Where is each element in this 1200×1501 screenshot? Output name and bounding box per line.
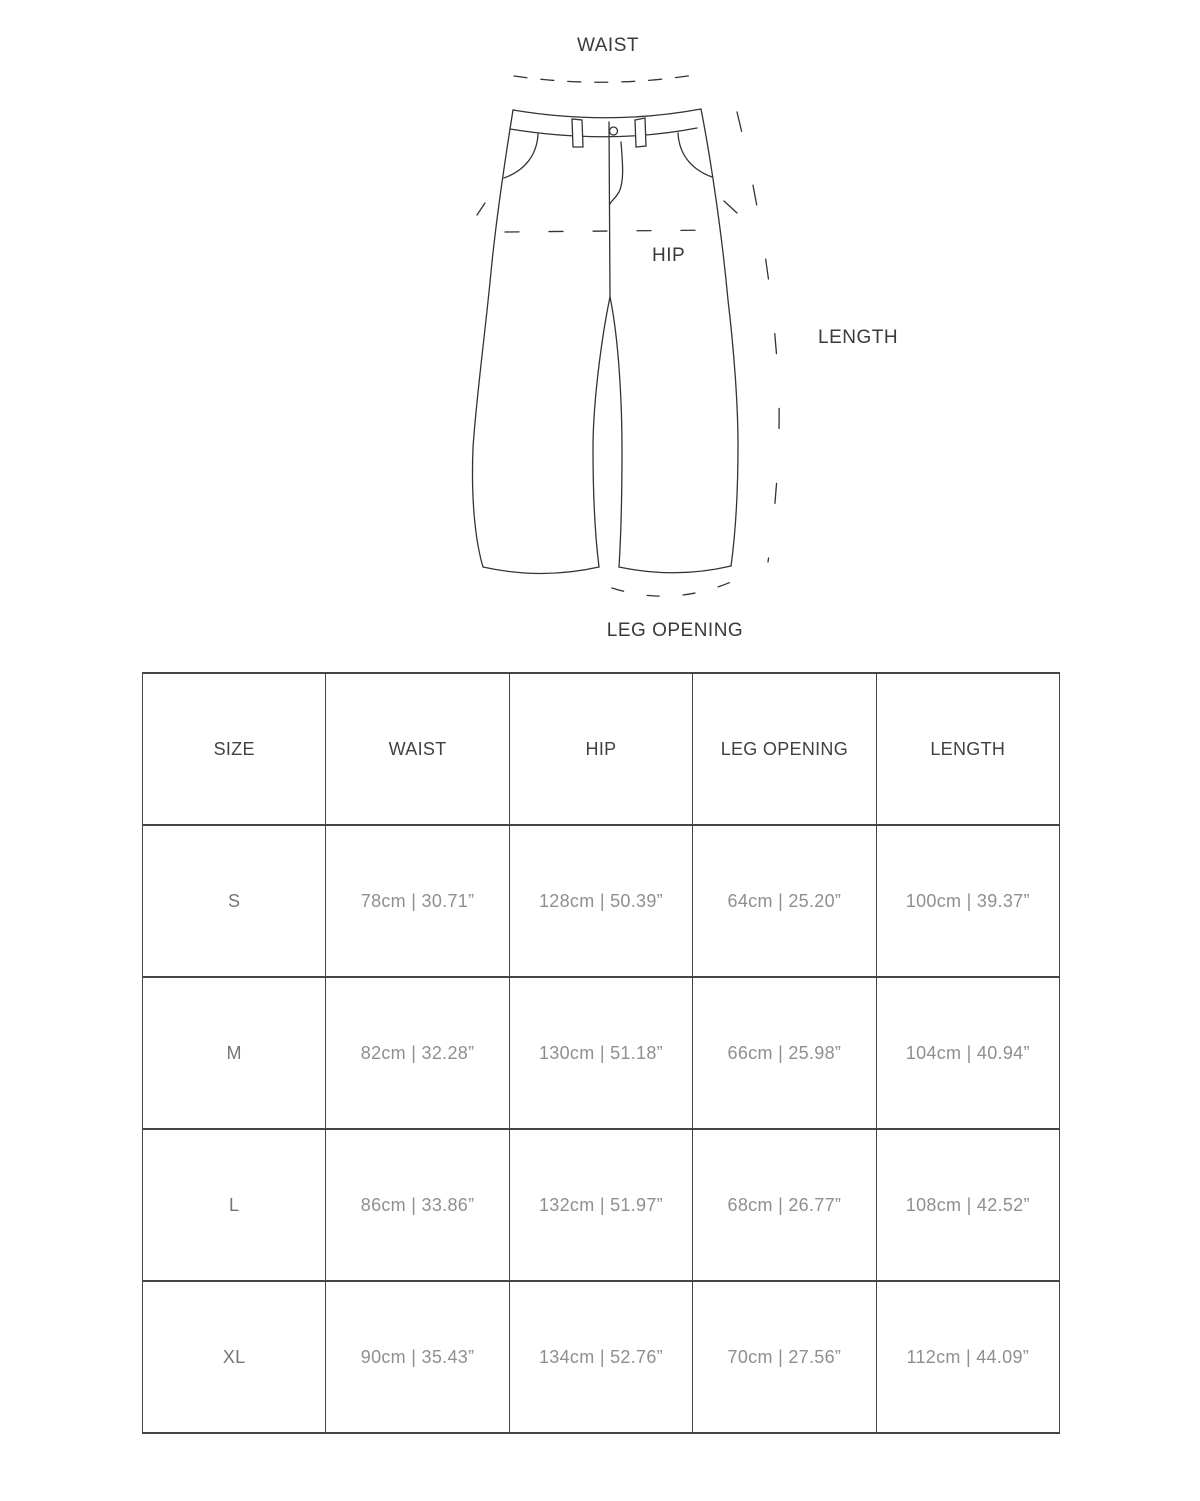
cell-l-waist: 86cm | 33.86” — [326, 1129, 509, 1281]
header-row: SIZE WAIST HIP LEG OPENING LENGTH — [143, 673, 1060, 825]
column-header-leg-opening: LEG OPENING — [693, 673, 876, 825]
cell-s-waist: 78cm | 30.71” — [326, 825, 509, 977]
right-seam-notch — [724, 201, 737, 213]
cell-s-leg-opening: 64cm | 25.20” — [693, 825, 876, 977]
waist-measure-line — [514, 75, 694, 82]
cell-m-waist: 82cm | 32.28” — [326, 977, 509, 1129]
hip-measure-line — [505, 230, 718, 232]
cell-m-hip: 130cm | 51.18” — [509, 977, 692, 1129]
cell-m-length: 104cm | 40.94” — [876, 977, 1059, 1129]
pants-technical-drawing — [0, 0, 1200, 660]
size-guide-page: WAIST HIP LENGTH LEG OPENING SIZE WAIST … — [0, 0, 1200, 1501]
right-leg-inseam — [610, 297, 622, 567]
table-row-s: S 78cm | 30.71” 128cm | 50.39” 64cm | 25… — [143, 825, 1060, 977]
cell-l-length: 108cm | 42.52” — [876, 1129, 1059, 1281]
leg-opening-label: LEG OPENING — [607, 620, 743, 642]
cell-l-hip: 132cm | 51.97” — [509, 1129, 692, 1281]
right-belt-loop — [635, 118, 646, 147]
cell-s-size: S — [143, 825, 326, 977]
cell-s-hip: 128cm | 50.39” — [509, 825, 692, 977]
hip-label: HIP — [652, 245, 685, 267]
column-header-length: LENGTH — [876, 673, 1059, 825]
cell-l-size: L — [143, 1129, 326, 1281]
waist-button — [610, 127, 618, 135]
table-row-xl: XL 90cm | 35.43” 134cm | 52.76” 70cm | 2… — [143, 1281, 1060, 1433]
fly-seam — [610, 142, 623, 204]
left-pocket-curve — [504, 134, 538, 178]
column-header-hip: HIP — [509, 673, 692, 825]
center-front-seam — [609, 122, 610, 297]
cell-s-length: 100cm | 39.37” — [876, 825, 1059, 977]
left-belt-loop — [572, 119, 583, 147]
cell-m-size: M — [143, 977, 326, 1129]
cell-xl-leg-opening: 70cm | 27.56” — [693, 1281, 876, 1433]
cell-xl-waist: 90cm | 35.43” — [326, 1281, 509, 1433]
left-leg-hem — [483, 567, 599, 574]
table-row-m: M 82cm | 32.28” 130cm | 51.18” 66cm | 25… — [143, 977, 1060, 1129]
left-seam-notch — [477, 203, 485, 215]
cell-xl-length: 112cm | 44.09” — [876, 1281, 1059, 1433]
column-header-size: SIZE — [143, 673, 326, 825]
table-row-l: L 86cm | 33.86” 132cm | 51.97” 68cm | 26… — [143, 1129, 1060, 1281]
cell-xl-size: XL — [143, 1281, 326, 1433]
size-chart-body: S 78cm | 30.71” 128cm | 50.39” 64cm | 25… — [143, 825, 1060, 1433]
waistband-top-edge — [513, 109, 701, 118]
length-label: LENGTH — [818, 327, 898, 349]
cell-l-leg-opening: 68cm | 26.77” — [693, 1129, 876, 1281]
column-header-waist: WAIST — [326, 673, 509, 825]
pants-size-diagram: WAIST HIP LENGTH LEG OPENING — [0, 0, 1200, 672]
cell-m-leg-opening: 66cm | 25.98” — [693, 977, 876, 1129]
right-leg-hem — [619, 566, 731, 573]
waist-label: WAIST — [577, 35, 639, 57]
leg-opening-measure-line — [612, 582, 731, 596]
size-chart-table: SIZE WAIST HIP LEG OPENING LENGTH S 78cm… — [142, 672, 1060, 1434]
cell-xl-hip: 134cm | 52.76” — [509, 1281, 692, 1433]
size-chart-header: SIZE WAIST HIP LEG OPENING LENGTH — [143, 673, 1060, 825]
left-leg-inseam — [593, 297, 610, 567]
right-leg-outer-seam — [701, 109, 738, 566]
length-measure-line — [737, 112, 779, 562]
left-leg-outer-seam — [472, 110, 513, 567]
